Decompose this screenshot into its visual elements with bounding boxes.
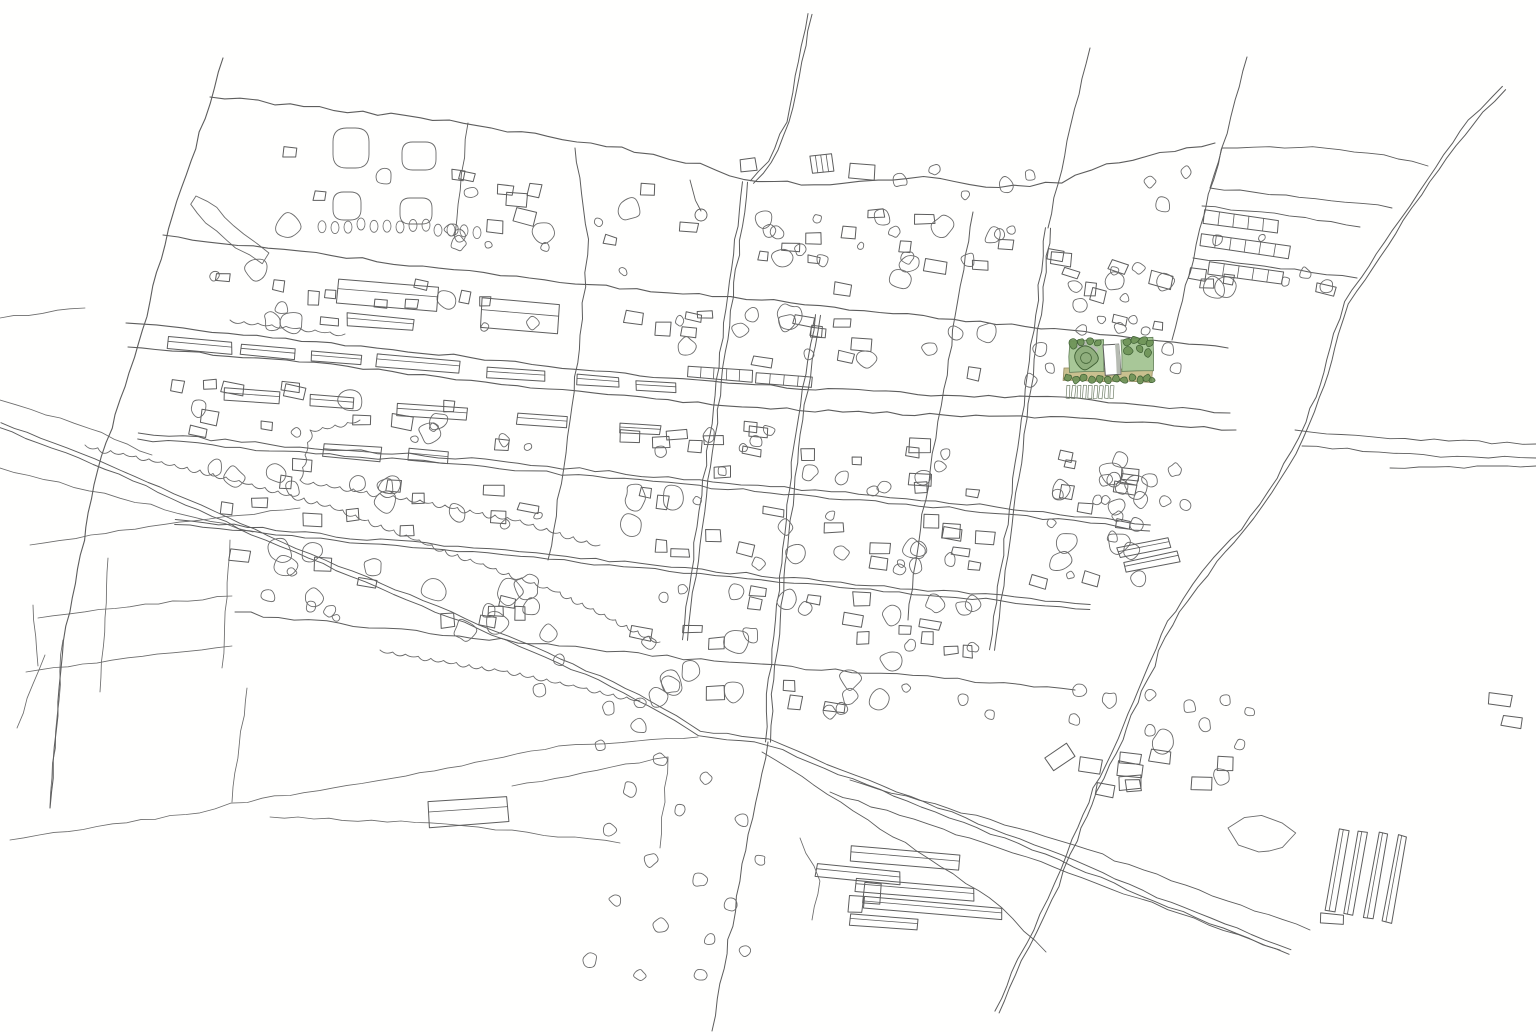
site-tree (1073, 376, 1080, 384)
site-garden-plot (1104, 385, 1108, 399)
orchard-tree (473, 227, 481, 239)
tree (1300, 267, 1311, 278)
orchard-tree (344, 221, 352, 233)
road-line (995, 228, 1051, 650)
site-garden-plot (1093, 385, 1098, 398)
house (1029, 575, 1047, 590)
tree (880, 652, 902, 671)
house (709, 637, 725, 650)
site-highlight-layer (1063, 336, 1155, 399)
tree (724, 682, 743, 703)
house (810, 325, 823, 337)
house (788, 695, 803, 710)
tree (915, 470, 931, 485)
tree (825, 511, 834, 520)
house (671, 549, 690, 558)
building (1095, 783, 1115, 798)
house (806, 595, 821, 605)
house (215, 274, 230, 282)
orchard-tree (434, 224, 442, 236)
field-strip-outline (191, 196, 269, 264)
house (459, 290, 471, 304)
house (914, 482, 927, 494)
house (630, 626, 653, 642)
road-line (1390, 466, 1536, 468)
building-roof-line (397, 408, 467, 413)
house (806, 233, 822, 245)
row-house-divider (797, 376, 798, 386)
tree (682, 661, 700, 682)
tree (603, 701, 614, 715)
field-boundary-line (512, 757, 668, 786)
house (1059, 485, 1074, 500)
tree (1132, 263, 1145, 275)
tree (802, 465, 818, 481)
road-line (50, 58, 223, 808)
row-house-divider (1233, 214, 1234, 227)
site-tree (1080, 374, 1087, 381)
tree-line (380, 650, 640, 701)
site-tree (1064, 374, 1071, 381)
tree (498, 578, 524, 605)
house (1062, 267, 1080, 278)
building (428, 797, 509, 828)
tree (487, 612, 509, 635)
road-line (235, 612, 1075, 690)
tree (305, 588, 323, 607)
tree (364, 559, 381, 576)
row-house-divider (1252, 268, 1254, 280)
site-garden-plot (1066, 385, 1070, 398)
house (823, 702, 845, 713)
tree (763, 425, 775, 435)
tree (901, 252, 914, 264)
tree (694, 969, 707, 980)
house (921, 632, 933, 645)
building (849, 914, 918, 930)
road-line (1210, 188, 1392, 208)
house (414, 279, 428, 290)
house (308, 291, 320, 306)
tree (532, 223, 554, 244)
house (273, 280, 285, 293)
building (1149, 749, 1171, 764)
orchard-tree (383, 220, 391, 232)
building-roof-line (817, 869, 900, 877)
row-house-divider (1230, 238, 1232, 250)
tree (889, 270, 911, 289)
tree (451, 235, 466, 250)
house (851, 338, 872, 352)
tree (958, 694, 968, 706)
tree (1102, 693, 1116, 708)
house (909, 438, 931, 453)
house (281, 381, 300, 392)
road-line (1048, 48, 1090, 228)
tree (583, 953, 597, 968)
tree (485, 242, 492, 248)
row-houses (1208, 262, 1284, 284)
house (1077, 503, 1093, 514)
tree (922, 343, 937, 355)
tree (374, 491, 395, 513)
building (313, 191, 326, 201)
house (688, 440, 703, 453)
row-house-divider (700, 367, 701, 378)
site-garden-plot (1082, 385, 1086, 399)
tree (905, 639, 916, 651)
house (919, 619, 942, 630)
house (640, 183, 654, 195)
house (487, 220, 503, 234)
house (685, 312, 702, 323)
house (748, 597, 763, 610)
road-line (1210, 148, 1222, 188)
tree (540, 624, 557, 642)
orchard-tree (460, 225, 468, 237)
building-roof-line (311, 355, 361, 359)
house (714, 466, 730, 479)
tree (500, 519, 510, 528)
tree (663, 485, 683, 510)
tree (929, 164, 940, 174)
house (737, 542, 755, 557)
tree (291, 428, 301, 438)
building (1124, 551, 1180, 572)
road-line (1202, 206, 1360, 227)
building (1045, 743, 1075, 771)
building-roof-line (620, 427, 661, 429)
house (655, 322, 671, 336)
tree (533, 683, 546, 697)
house (1153, 321, 1163, 330)
blocks-layer (171, 168, 1337, 791)
tree (1047, 519, 1056, 528)
tree (1120, 293, 1129, 302)
buildings-layer (167, 147, 1522, 930)
row-house-divider (1248, 216, 1249, 229)
house (942, 523, 961, 538)
house (293, 458, 313, 472)
field-boundary-line (33, 605, 38, 666)
house (1191, 777, 1212, 790)
tree (1215, 277, 1236, 298)
site-tree (1104, 376, 1111, 383)
house (1112, 314, 1127, 326)
tree (603, 823, 616, 836)
tree (743, 628, 758, 643)
tree (735, 814, 748, 827)
tree (1214, 769, 1230, 785)
road-line (138, 439, 1150, 531)
house (706, 530, 722, 542)
building (1079, 757, 1103, 774)
building-hatch-line (821, 155, 824, 172)
tree (527, 316, 540, 330)
house (763, 506, 784, 517)
house (870, 543, 891, 554)
house (751, 356, 773, 368)
tree (1184, 700, 1196, 713)
tree (786, 544, 806, 563)
tree (1142, 474, 1158, 487)
building-roof-line (409, 453, 448, 457)
tree (1180, 499, 1191, 510)
tree (1234, 739, 1244, 750)
row-house-divider (1274, 244, 1276, 256)
tree (902, 684, 911, 692)
tree (275, 302, 288, 314)
tree (1145, 724, 1155, 736)
tree (514, 574, 538, 600)
house (915, 214, 936, 224)
house (944, 646, 958, 655)
site-garden-plot (1110, 386, 1114, 399)
tree (276, 213, 301, 238)
house (868, 209, 885, 218)
orchard-tree (318, 221, 326, 233)
house (783, 680, 795, 691)
tree (956, 602, 972, 615)
house (1316, 283, 1337, 296)
sketch-map-svg (0, 0, 1536, 1032)
building (848, 896, 864, 913)
tree (642, 636, 657, 649)
house (923, 259, 947, 275)
tree (261, 590, 275, 602)
road-line (688, 182, 748, 640)
house (837, 350, 854, 363)
house (857, 632, 869, 645)
railway-line (0, 427, 1289, 954)
tree (625, 484, 645, 511)
tree (524, 444, 532, 451)
tree (763, 224, 776, 237)
house (1051, 252, 1072, 267)
pond-outline (402, 142, 436, 170)
fields-layer (0, 308, 820, 920)
site-garden-plot (1077, 385, 1081, 398)
building-roof-line (487, 371, 545, 375)
site-tree (1096, 375, 1103, 383)
tree (772, 249, 794, 267)
building-hatch-line (826, 154, 829, 171)
building (849, 163, 875, 180)
house (405, 299, 419, 308)
tree (1141, 327, 1150, 335)
house (400, 525, 414, 536)
tree (755, 211, 772, 229)
tree (1076, 325, 1087, 335)
house (483, 485, 504, 496)
site-garden-plot (1098, 385, 1103, 399)
house (749, 586, 766, 597)
row-house-divider (739, 370, 740, 382)
tree (693, 496, 702, 504)
road-line (138, 433, 1150, 525)
tree (1144, 176, 1156, 188)
tree (280, 313, 302, 334)
tree (191, 400, 206, 418)
tree (834, 546, 849, 560)
tree (266, 464, 286, 483)
tree (985, 710, 994, 720)
tree (840, 670, 862, 691)
pond-outline (1228, 815, 1296, 852)
tree (268, 538, 292, 562)
house (968, 561, 981, 571)
house (679, 222, 698, 232)
tree (1050, 552, 1072, 571)
house (842, 612, 863, 627)
tree (889, 226, 901, 237)
tree (595, 740, 605, 750)
tree (245, 259, 267, 281)
tree (618, 198, 640, 220)
tree (752, 557, 765, 570)
orchard-tree (422, 219, 430, 231)
house (200, 409, 219, 426)
tree (1259, 234, 1266, 241)
building-roof-line (850, 918, 917, 923)
tree (1099, 463, 1123, 485)
house (824, 523, 844, 533)
tree (1097, 316, 1105, 324)
pond-outline (333, 128, 369, 168)
site-tree (1088, 376, 1095, 383)
tree (676, 315, 684, 326)
building (815, 864, 900, 885)
tree (1093, 495, 1102, 505)
tree (755, 855, 765, 865)
tree (1056, 534, 1077, 554)
row-house-divider (1237, 266, 1239, 278)
tree (724, 898, 737, 911)
tree (675, 804, 685, 816)
tree (660, 670, 682, 695)
building-roof-line (224, 393, 279, 397)
house (1047, 249, 1064, 262)
tree (893, 564, 906, 575)
tree (961, 191, 969, 200)
row-house-divider (1263, 218, 1264, 231)
house (603, 234, 617, 245)
building (283, 147, 297, 157)
house (706, 686, 724, 701)
house (252, 498, 268, 508)
house (853, 592, 871, 606)
house (998, 239, 1014, 249)
tree (1069, 714, 1080, 725)
tree (659, 592, 668, 602)
house (899, 241, 912, 253)
house (966, 489, 980, 498)
house (1149, 270, 1173, 289)
tree (967, 642, 979, 652)
field-boundary-line (10, 737, 698, 840)
road-line (771, 315, 821, 742)
tree (1045, 363, 1054, 373)
house (171, 380, 185, 393)
railway-branch-line (762, 752, 1046, 952)
house (527, 183, 542, 197)
tree (1068, 281, 1082, 293)
tree (1168, 463, 1181, 477)
building-hatch-line (815, 156, 818, 173)
tree (739, 946, 750, 957)
tree (619, 268, 627, 276)
tree (678, 337, 696, 356)
tree (678, 585, 687, 594)
tree (934, 461, 946, 472)
tree (609, 895, 621, 906)
road-line (1295, 430, 1536, 444)
tree-line (230, 320, 345, 336)
tree (857, 242, 863, 249)
tree-line (432, 545, 660, 642)
house (386, 480, 402, 492)
field-boundary-line (30, 508, 300, 545)
tree (1170, 363, 1181, 374)
road-line (175, 525, 1090, 610)
row-house-divider (1259, 242, 1261, 254)
building (577, 374, 619, 387)
building-roof-line (1118, 542, 1169, 552)
orchard-tree (357, 218, 365, 230)
row-house-divider (713, 368, 714, 379)
sketch-page (0, 0, 1536, 1032)
canopy-layer (85, 320, 660, 701)
road-line (995, 86, 1503, 1011)
tree (795, 244, 806, 256)
roads-layer (50, 14, 1536, 1031)
tree (1131, 571, 1146, 587)
tree (729, 584, 744, 600)
tree (965, 595, 981, 611)
site-garden-plot (1071, 385, 1076, 398)
tree (700, 772, 712, 784)
tree (835, 471, 848, 485)
ponds-layer (191, 128, 1296, 852)
house (801, 449, 815, 461)
tree (376, 168, 391, 184)
house (841, 226, 856, 239)
house (325, 290, 336, 299)
tree (274, 555, 298, 575)
tree (977, 323, 996, 342)
tree (421, 579, 446, 601)
tree (287, 568, 297, 576)
building (397, 403, 468, 420)
tree (798, 601, 812, 615)
building-roof-line (241, 348, 295, 353)
tree (224, 466, 245, 487)
tree (739, 443, 747, 451)
tree (777, 589, 796, 609)
house (967, 367, 981, 381)
house (444, 400, 455, 412)
railway-branch-line (830, 792, 1280, 950)
house (869, 556, 888, 570)
building (1382, 835, 1406, 924)
pond-outline (400, 198, 432, 224)
field-boundary-line (800, 838, 820, 920)
site-garden-plot (1088, 385, 1092, 398)
house (1084, 282, 1096, 296)
house (346, 508, 359, 521)
building (1501, 716, 1522, 729)
building-roof-line (517, 418, 567, 422)
